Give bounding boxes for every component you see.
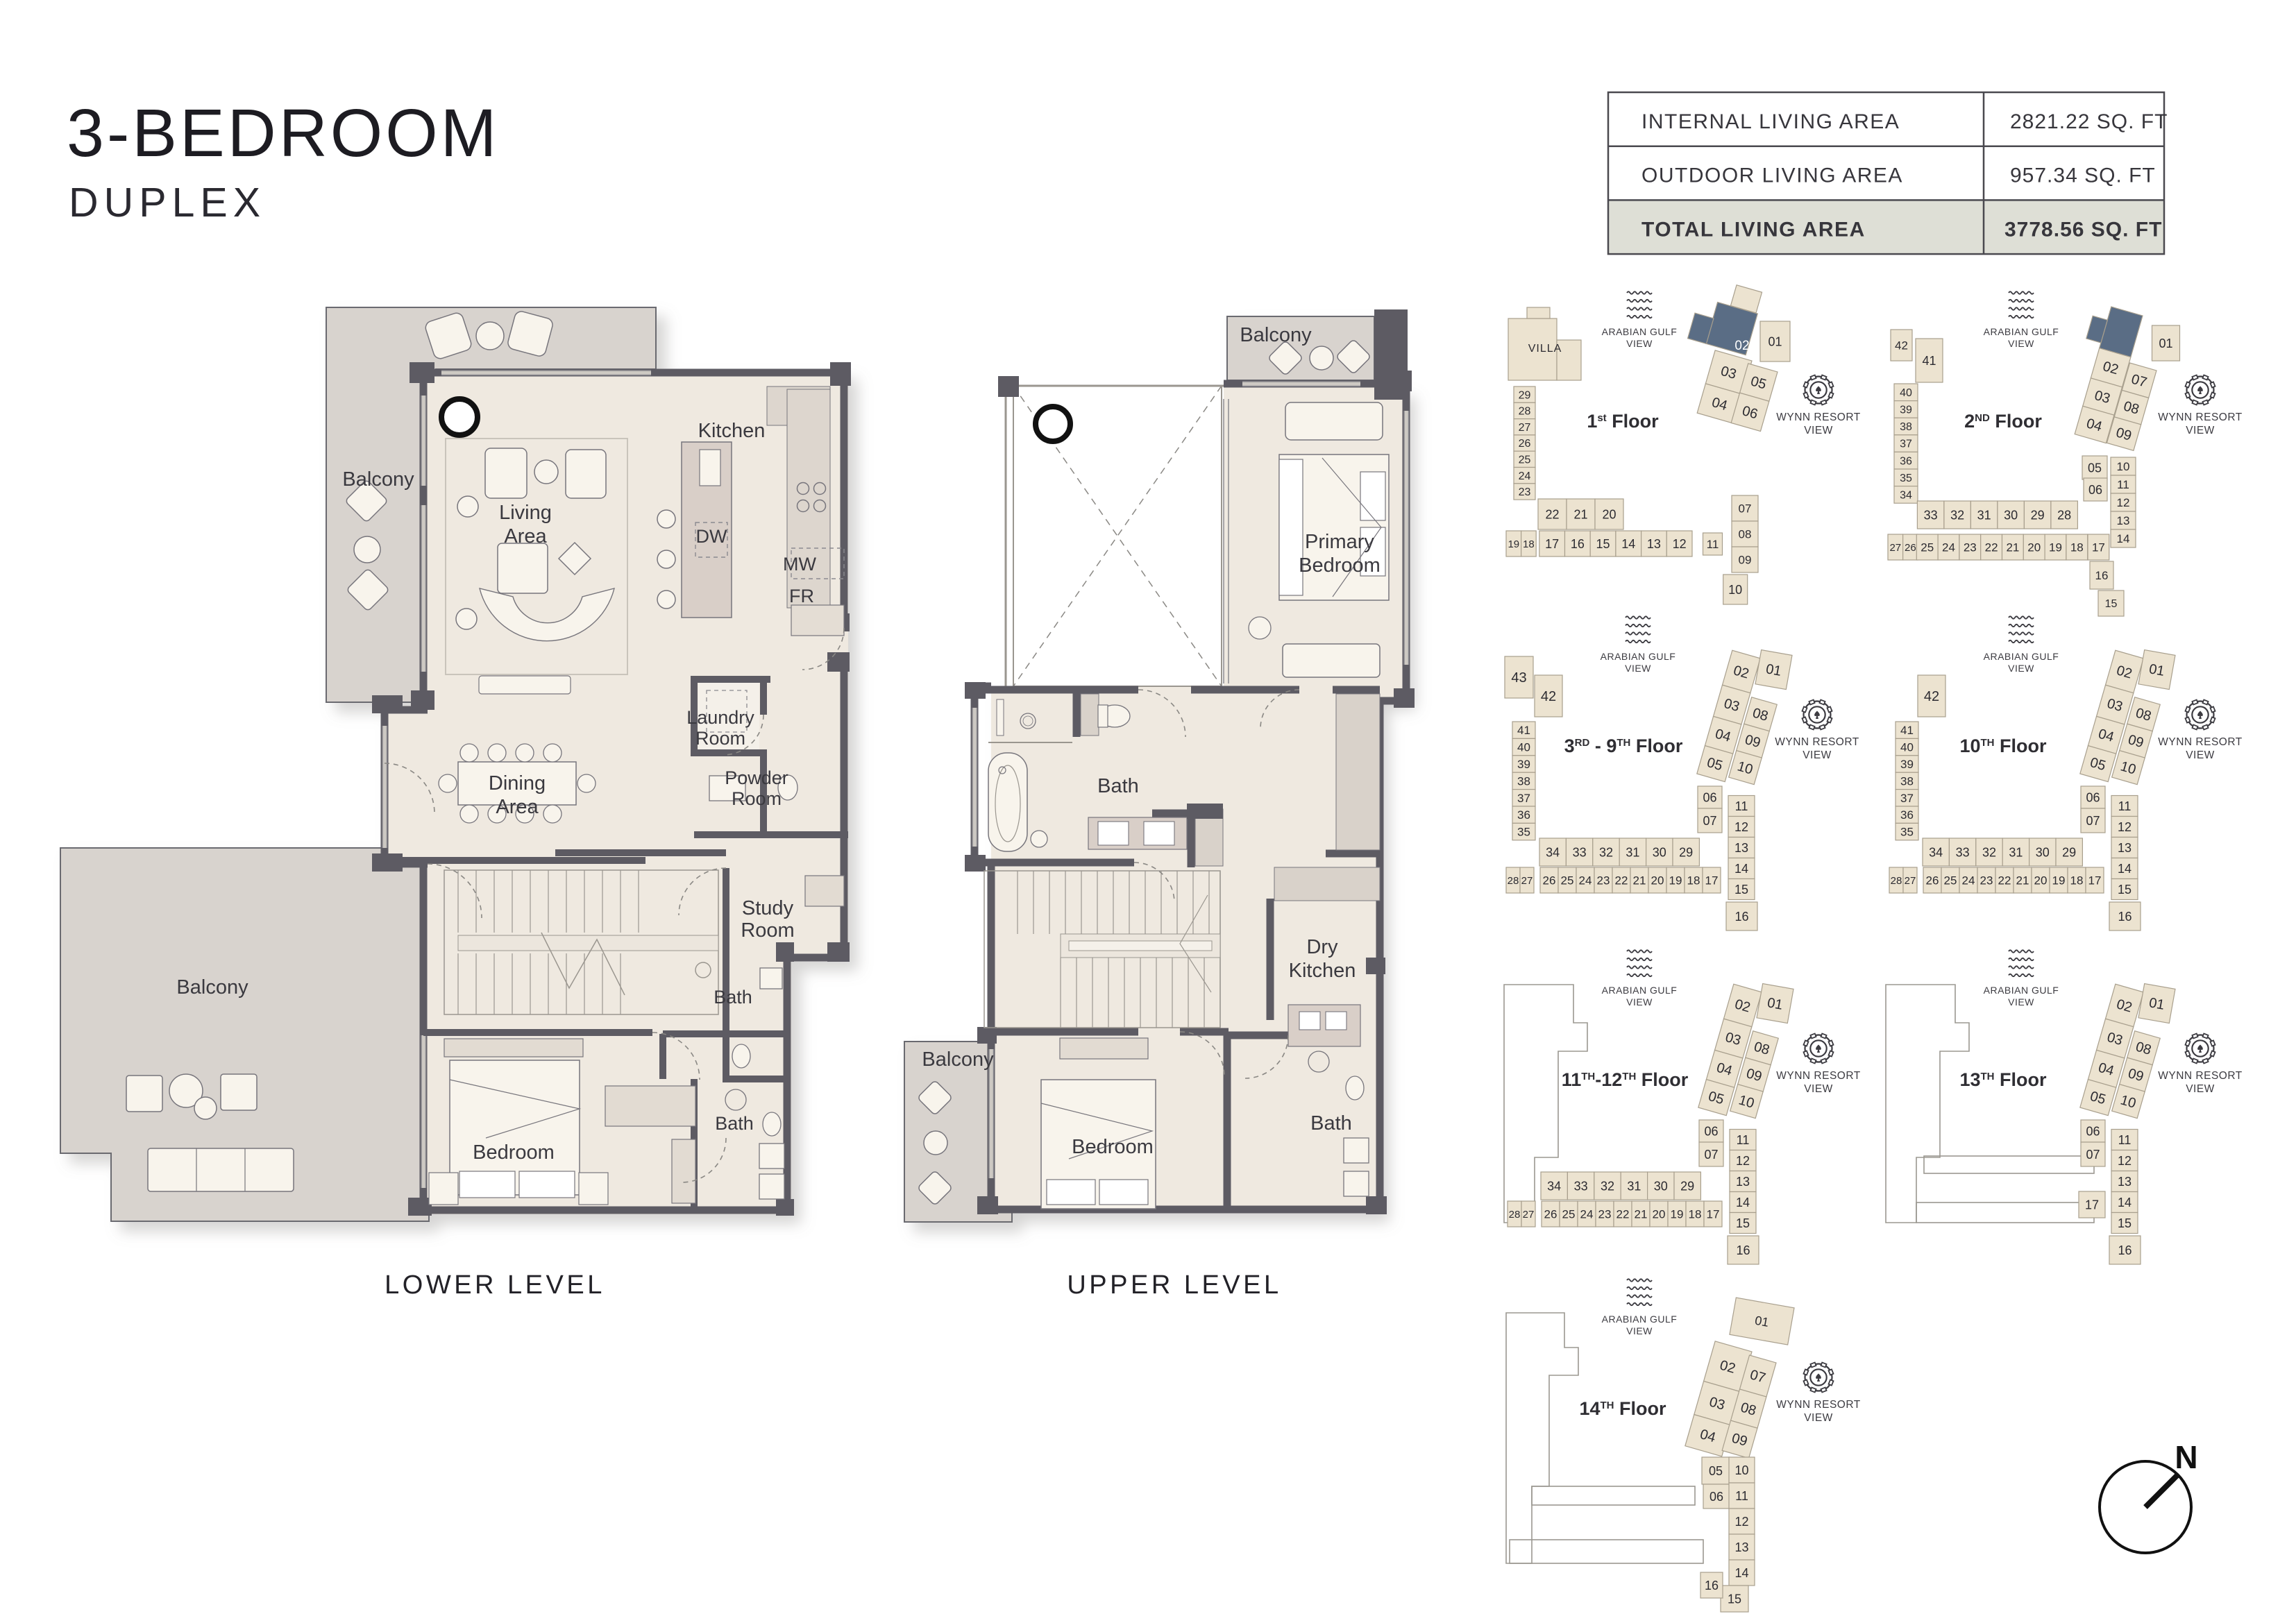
svg-text:WYNN RESORT: WYNN RESORT [1776, 1399, 1861, 1411]
svg-text:Room: Room [695, 728, 745, 749]
svg-text:28: 28 [1508, 875, 1519, 887]
svg-text:29: 29 [1679, 845, 1693, 859]
svg-text:ARABIAN GULF: ARABIAN GULF [1602, 1314, 1678, 1325]
svg-text:30: 30 [2036, 845, 2050, 859]
svg-text:37: 37 [1900, 439, 1912, 450]
svg-text:3778.56 SQ. FT: 3778.56 SQ. FT [2004, 218, 2162, 241]
svg-text:32: 32 [1599, 845, 1613, 859]
svg-text:35: 35 [1900, 473, 1912, 484]
svg-text:32: 32 [1601, 1179, 1614, 1193]
svg-text:16: 16 [1705, 1579, 1719, 1592]
svg-text:12: 12 [1736, 1154, 1750, 1168]
svg-text:FR: FR [789, 586, 814, 606]
svg-text:17: 17 [2088, 874, 2102, 887]
svg-text:16: 16 [2095, 569, 2109, 582]
svg-text:Room: Room [732, 788, 782, 809]
svg-text:26: 26 [1543, 874, 1556, 887]
svg-text:24: 24 [1962, 874, 1975, 887]
svg-text:39: 39 [1900, 405, 1912, 416]
svg-text:15: 15 [2118, 883, 2132, 897]
svg-text:14: 14 [1734, 1566, 1748, 1580]
svg-text:13: 13 [1647, 537, 1661, 551]
svg-text:07: 07 [1739, 502, 1752, 515]
svg-text:30: 30 [1654, 1179, 1668, 1193]
svg-text:3-BEDROOM: 3-BEDROOM [67, 95, 499, 171]
svg-text:VIEW: VIEW [2008, 996, 2034, 1008]
svg-text:29: 29 [2031, 508, 2045, 522]
svg-text:27: 27 [1521, 875, 1533, 887]
svg-text:01: 01 [2147, 661, 2166, 679]
svg-text:39: 39 [1517, 758, 1530, 771]
svg-text:Bath: Bath [714, 987, 752, 1008]
svg-text:36: 36 [1900, 455, 1912, 467]
svg-text:21: 21 [1635, 1207, 1648, 1221]
svg-text:VIEW: VIEW [2186, 1083, 2215, 1095]
svg-text:40: 40 [1900, 741, 1914, 754]
svg-text:25: 25 [1921, 541, 1934, 554]
svg-text:VIEW: VIEW [1626, 338, 1653, 349]
svg-text:13: 13 [2118, 841, 2132, 855]
svg-text:ARABIAN GULF: ARABIAN GULF [1984, 326, 2059, 337]
svg-text:34: 34 [1547, 1179, 1561, 1193]
svg-text:07: 07 [1703, 814, 1716, 828]
svg-text:13: 13 [2118, 1175, 2132, 1189]
svg-text:VIEW: VIEW [1626, 1325, 1653, 1336]
svg-text:MW: MW [783, 554, 816, 575]
svg-text:22: 22 [1615, 874, 1628, 887]
svg-text:18: 18 [2070, 874, 2084, 887]
svg-text:32: 32 [1982, 845, 1996, 859]
svg-text:16: 16 [2118, 910, 2132, 924]
svg-text:VIEW: VIEW [1625, 663, 1651, 674]
svg-text:38: 38 [1900, 774, 1914, 788]
svg-text:15: 15 [1734, 883, 1748, 897]
svg-text:29: 29 [1680, 1179, 1694, 1193]
svg-text:15: 15 [1728, 1592, 1741, 1606]
svg-text:Bath: Bath [1310, 1112, 1352, 1135]
svg-text:39: 39 [1900, 758, 1914, 771]
svg-text:ARABIAN GULF: ARABIAN GULF [1984, 985, 2059, 996]
svg-text:01: 01 [1768, 334, 1782, 348]
svg-text:30: 30 [1653, 845, 1666, 859]
svg-text:12: 12 [2118, 1154, 2132, 1168]
svg-text:Area: Area [496, 796, 539, 818]
svg-text:33: 33 [1573, 845, 1587, 859]
svg-text:40: 40 [1900, 387, 1912, 399]
svg-text:Room: Room [741, 919, 794, 942]
svg-text:10: 10 [1734, 1463, 1748, 1477]
svg-text:06: 06 [2088, 483, 2102, 497]
svg-text:INTERNAL LIVING AREA: INTERNAL LIVING AREA [1641, 110, 1900, 133]
svg-text:06: 06 [1703, 790, 1716, 804]
svg-text:WYNN RESORT: WYNN RESORT [1775, 736, 1859, 748]
svg-text:UPPER LEVEL: UPPER LEVEL [1067, 1271, 1281, 1300]
svg-text:14: 14 [1736, 1196, 1750, 1209]
svg-text:33: 33 [1574, 1179, 1588, 1193]
svg-text:25: 25 [1944, 874, 1957, 887]
svg-text:13TH Floor: 13TH Floor [1959, 1069, 2047, 1090]
svg-text:24: 24 [1942, 541, 1955, 554]
svg-text:21: 21 [2016, 874, 2029, 887]
svg-text:VIEW: VIEW [1804, 1083, 1833, 1095]
svg-text:42: 42 [1541, 689, 1556, 704]
svg-text:OUTDOOR LIVING AREA: OUTDOOR LIVING AREA [1641, 164, 1903, 187]
svg-text:41: 41 [1517, 724, 1530, 737]
svg-text:VIEW: VIEW [1804, 1412, 1833, 1424]
svg-text:Powder: Powder [725, 767, 788, 788]
svg-text:25: 25 [1562, 1207, 1576, 1221]
svg-text:12: 12 [1673, 537, 1687, 551]
svg-text:42: 42 [1924, 689, 1939, 704]
svg-text:WYNN RESORT: WYNN RESORT [1776, 1070, 1861, 1082]
svg-text:28: 28 [1509, 1209, 1521, 1221]
svg-text:33: 33 [1924, 508, 1938, 522]
svg-text:21: 21 [1633, 874, 1646, 887]
svg-text:36: 36 [1900, 808, 1914, 822]
svg-text:11: 11 [2117, 478, 2129, 491]
svg-text:12: 12 [2118, 820, 2132, 834]
svg-text:21: 21 [1573, 507, 1587, 521]
svg-text:Balcony: Balcony [342, 468, 414, 491]
svg-text:20: 20 [1651, 874, 1664, 887]
svg-text:32: 32 [1950, 508, 1964, 522]
svg-text:Area: Area [504, 525, 547, 547]
svg-text:07: 07 [2086, 814, 2100, 828]
svg-text:Dry: Dry [1306, 936, 1338, 958]
svg-text:14TH Floor: 14TH Floor [1579, 1398, 1666, 1419]
svg-text:25: 25 [1519, 454, 1531, 466]
svg-text:Bath: Bath [1097, 775, 1139, 797]
svg-text:17: 17 [1705, 874, 1719, 887]
svg-text:WYNN RESORT: WYNN RESORT [1776, 411, 1861, 423]
svg-text:01: 01 [2147, 995, 2166, 1013]
svg-text:14: 14 [1621, 537, 1635, 551]
svg-text:16: 16 [1736, 1243, 1750, 1257]
svg-text:28: 28 [2057, 508, 2071, 522]
svg-text:02: 02 [1734, 339, 1749, 353]
svg-text:36: 36 [1517, 808, 1530, 822]
svg-text:09: 09 [1739, 553, 1752, 566]
svg-text:15: 15 [2105, 598, 2118, 610]
svg-text:10: 10 [1728, 583, 1742, 597]
svg-text:33: 33 [1956, 845, 1970, 859]
svg-text:29: 29 [1519, 389, 1531, 401]
svg-text:31: 31 [2009, 845, 2023, 859]
svg-text:21: 21 [2006, 541, 2019, 554]
svg-text:DUPLEX: DUPLEX [69, 180, 266, 226]
svg-text:22: 22 [1617, 1207, 1630, 1221]
svg-text:ARABIAN GULF: ARABIAN GULF [1602, 326, 1678, 337]
svg-text:06: 06 [2086, 1124, 2100, 1138]
svg-text:01: 01 [2159, 337, 2172, 350]
svg-text:38: 38 [1517, 774, 1530, 788]
svg-text:28: 28 [1519, 406, 1531, 418]
svg-text:22: 22 [1545, 507, 1559, 521]
svg-text:N: N [2175, 1439, 2197, 1475]
svg-text:06: 06 [2086, 790, 2100, 804]
svg-text:14: 14 [2117, 532, 2130, 545]
svg-text:41: 41 [1922, 354, 1936, 368]
svg-text:35: 35 [1517, 826, 1530, 839]
svg-text:23: 23 [1980, 874, 1993, 887]
svg-text:19: 19 [1669, 874, 1682, 887]
svg-text:WYNN RESORT: WYNN RESORT [2158, 411, 2243, 423]
svg-text:20: 20 [2034, 874, 2048, 887]
svg-text:Kitchen: Kitchen [1289, 960, 1356, 982]
svg-text:19: 19 [2052, 874, 2066, 887]
svg-text:ARABIAN GULF: ARABIAN GULF [1601, 651, 1676, 662]
svg-text:05: 05 [1709, 1464, 1723, 1478]
svg-text:25: 25 [1561, 874, 1574, 887]
svg-text:WYNN RESORT: WYNN RESORT [2158, 736, 2243, 748]
svg-text:35: 35 [1900, 826, 1914, 839]
svg-text:17: 17 [2092, 541, 2105, 554]
svg-text:05: 05 [2088, 461, 2102, 475]
svg-text:18: 18 [1689, 1207, 1702, 1221]
svg-text:WYNN RESORT: WYNN RESORT [2158, 1070, 2243, 1082]
svg-text:16: 16 [1734, 910, 1748, 924]
svg-text:28: 28 [1891, 875, 1902, 887]
svg-text:Bedroom: Bedroom [473, 1141, 555, 1164]
svg-text:18: 18 [1523, 538, 1535, 550]
svg-text:14: 14 [2118, 1196, 2132, 1209]
svg-text:16: 16 [1571, 537, 1585, 551]
svg-text:17: 17 [2085, 1198, 2099, 1212]
svg-text:24: 24 [1519, 470, 1531, 482]
svg-text:VILLA: VILLA [1528, 343, 1562, 355]
svg-text:24: 24 [1579, 874, 1592, 887]
svg-text:27: 27 [1523, 1209, 1535, 1221]
svg-text:07: 07 [2086, 1148, 2100, 1162]
svg-text:29: 29 [2062, 845, 2076, 859]
svg-text:34: 34 [1900, 490, 1912, 502]
svg-text:27: 27 [1519, 422, 1531, 434]
svg-text:Laundry: Laundry [686, 707, 754, 728]
svg-text:19: 19 [2049, 541, 2062, 554]
svg-text:10: 10 [2117, 460, 2130, 473]
svg-text:38: 38 [1900, 421, 1912, 433]
svg-text:06: 06 [1710, 1490, 1723, 1504]
svg-text:LOWER LEVEL: LOWER LEVEL [385, 1271, 605, 1300]
svg-text:13: 13 [1734, 841, 1748, 855]
svg-text:VIEW: VIEW [2186, 425, 2215, 436]
svg-text:27: 27 [1889, 542, 1901, 554]
svg-text:VIEW: VIEW [2008, 338, 2034, 349]
svg-text:16: 16 [2118, 1243, 2132, 1257]
svg-text:10TH Floor: 10TH Floor [1959, 736, 2047, 756]
svg-text:22: 22 [1998, 874, 2011, 887]
svg-text:12: 12 [1734, 1515, 1748, 1529]
svg-text:43: 43 [1511, 670, 1526, 686]
svg-text:Kitchen: Kitchen [698, 420, 766, 442]
svg-text:26: 26 [1926, 874, 1939, 887]
svg-text:14: 14 [1734, 862, 1748, 876]
svg-text:12: 12 [2117, 496, 2130, 509]
svg-text:Balcony: Balcony [1240, 324, 1312, 346]
svg-text:01: 01 [1766, 995, 1784, 1013]
svg-text:Primary: Primary [1305, 531, 1374, 553]
svg-text:ARABIAN GULF: ARABIAN GULF [1984, 651, 2059, 662]
svg-text:15: 15 [1596, 537, 1610, 551]
svg-text:08: 08 [1739, 527, 1752, 541]
svg-text:ARABIAN GULF: ARABIAN GULF [1602, 985, 1678, 996]
svg-text:Bedroom: Bedroom [1299, 554, 1381, 577]
svg-text:20: 20 [2027, 541, 2041, 554]
svg-text:24: 24 [1580, 1207, 1594, 1221]
svg-text:Living: Living [499, 502, 552, 524]
svg-text:15: 15 [2118, 1216, 2132, 1230]
svg-text:23: 23 [1964, 541, 1977, 554]
svg-text:11: 11 [2118, 1133, 2132, 1147]
svg-text:01: 01 [1754, 1314, 1770, 1329]
svg-text:40: 40 [1517, 741, 1530, 754]
svg-text:34: 34 [1546, 845, 1560, 859]
svg-text:31: 31 [1627, 1179, 1641, 1193]
svg-text:11: 11 [1737, 1133, 1750, 1147]
svg-text:VIEW: VIEW [2008, 663, 2034, 674]
svg-text:23: 23 [1519, 486, 1531, 498]
svg-text:37: 37 [1517, 792, 1530, 805]
svg-text:TOTAL LIVING AREA: TOTAL LIVING AREA [1641, 218, 1866, 241]
svg-text:13: 13 [2117, 514, 2130, 527]
svg-text:Dining: Dining [489, 772, 546, 794]
svg-text:30: 30 [2004, 508, 2018, 522]
svg-text:26: 26 [1544, 1207, 1558, 1221]
svg-text:37: 37 [1900, 792, 1914, 805]
svg-text:20: 20 [1602, 507, 1616, 521]
svg-text:13: 13 [1736, 1175, 1750, 1189]
svg-text:11: 11 [1735, 1489, 1748, 1503]
svg-text:06: 06 [1704, 1124, 1718, 1138]
svg-text:DW: DW [696, 526, 727, 547]
svg-text:22: 22 [1985, 541, 1998, 554]
svg-text:18: 18 [2070, 541, 2084, 554]
svg-text:07: 07 [1704, 1148, 1718, 1162]
svg-text:VIEW: VIEW [1626, 996, 1653, 1008]
svg-text:13: 13 [1734, 1540, 1748, 1554]
svg-text:41: 41 [1900, 724, 1914, 737]
svg-text:23: 23 [1597, 874, 1610, 887]
svg-text:31: 31 [1977, 508, 1991, 522]
svg-text:Balcony: Balcony [922, 1048, 994, 1071]
svg-text:14: 14 [2118, 862, 2132, 876]
svg-text:VIEW: VIEW [2186, 749, 2215, 761]
svg-text:18: 18 [1687, 874, 1700, 887]
svg-text:Study: Study [742, 897, 794, 919]
svg-text:11: 11 [1707, 538, 1719, 551]
svg-text:Bedroom: Bedroom [1072, 1136, 1154, 1158]
svg-text:19: 19 [1508, 538, 1519, 550]
svg-text:VIEW: VIEW [1804, 425, 1833, 436]
svg-text:2821.22 SQ. FT: 2821.22 SQ. FT [2010, 110, 2168, 133]
svg-text:26: 26 [1519, 438, 1531, 450]
svg-text:23: 23 [1598, 1207, 1612, 1221]
svg-text:17: 17 [1707, 1207, 1720, 1221]
svg-text:17: 17 [1545, 537, 1559, 551]
svg-text:20: 20 [1653, 1207, 1666, 1221]
svg-text:42: 42 [1895, 339, 1908, 352]
svg-text:VIEW: VIEW [1803, 749, 1832, 761]
svg-text:11: 11 [1735, 799, 1748, 813]
svg-text:34: 34 [1929, 845, 1943, 859]
svg-text:Balcony: Balcony [176, 976, 248, 999]
svg-text:12: 12 [1734, 820, 1748, 834]
svg-text:31: 31 [1626, 845, 1639, 859]
svg-text:957.34 SQ. FT: 957.34 SQ. FT [2010, 164, 2156, 187]
svg-text:26: 26 [1905, 542, 1916, 554]
svg-text:Bath: Bath [715, 1113, 754, 1134]
svg-text:15: 15 [1736, 1216, 1750, 1230]
svg-text:19: 19 [1671, 1207, 1684, 1221]
svg-text:27: 27 [1905, 875, 1916, 887]
svg-text:11: 11 [2118, 799, 2132, 813]
svg-text:01: 01 [1764, 661, 1782, 679]
